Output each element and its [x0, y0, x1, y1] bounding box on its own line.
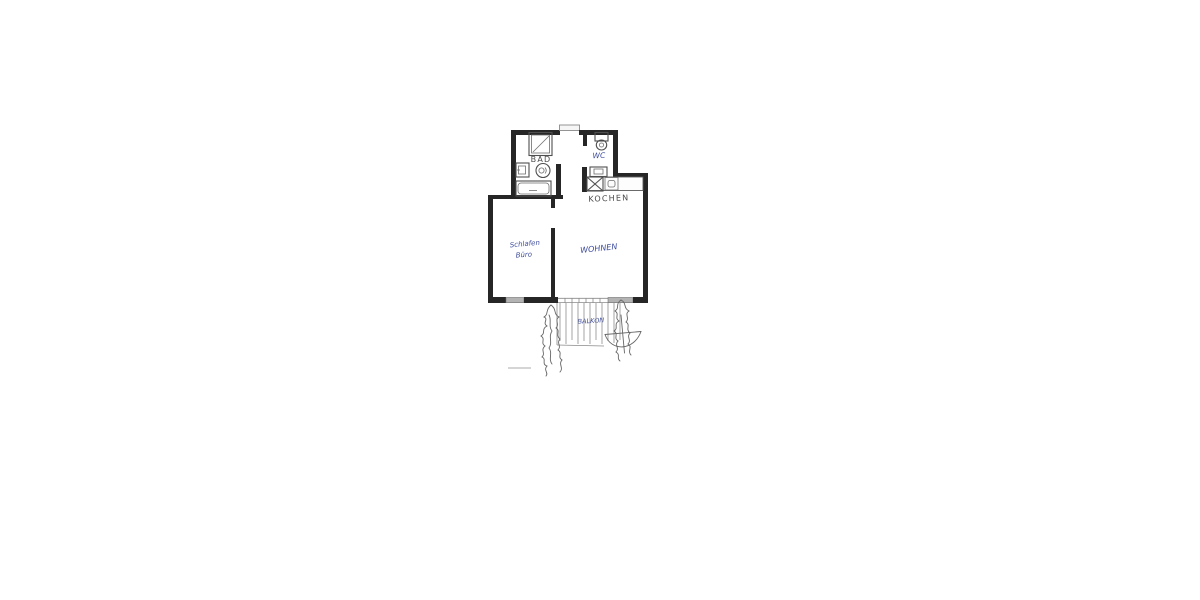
- wall-bottom-right: [633, 297, 648, 303]
- wc-label: WC: [592, 151, 606, 160]
- wohnen-label: WOHNEN: [580, 242, 618, 255]
- scanned-floor-plan-page: BAD WC KOCHEN Schlafen Büro WOHNEN: [0, 0, 1200, 600]
- wall-divider-stub: [551, 199, 555, 208]
- wall-bottom-mid: [524, 297, 558, 303]
- wall-wc-block: [582, 167, 587, 192]
- wall-right: [643, 173, 648, 303]
- wc-washbasin-icon: [590, 167, 607, 177]
- wc-toilet-icon: [595, 133, 608, 151]
- bathroom-washbasin-icon: [516, 163, 529, 177]
- wc-fixtures: WC: [590, 133, 608, 177]
- floor-plan-drawing: BAD WC KOCHEN Schlafen Büro WOHNEN: [0, 0, 1200, 600]
- wall-bottom-left: [488, 297, 506, 303]
- bathroom-toilet-icon: [536, 164, 550, 178]
- wall-bad-right: [556, 164, 561, 199]
- wall-left: [488, 195, 493, 303]
- shower-icon: [529, 133, 552, 156]
- bathroom-fixtures: BAD: [516, 133, 552, 197]
- buero-label: Büro: [515, 250, 532, 259]
- wall-bad-left: [511, 130, 516, 199]
- schlafen-label: Schlafen: [509, 239, 540, 250]
- wall-divider-lower: [551, 228, 555, 300]
- balkon-label: BALKON: [577, 316, 604, 325]
- balcony: [541, 300, 641, 376]
- wall-wc-right: [613, 130, 618, 178]
- room-labels: Schlafen Büro WOHNEN BALKON: [509, 239, 617, 326]
- window-bedroom: [506, 298, 524, 303]
- bad-label: BAD: [531, 155, 552, 164]
- plant-left-icon: [541, 305, 562, 376]
- wall-wc-left-stub: [583, 130, 587, 146]
- bathtub-icon: [516, 181, 551, 196]
- walls: [488, 125, 648, 303]
- kitchen: KOCHEN: [587, 177, 643, 204]
- entry-door-icon: [560, 125, 580, 131]
- round-table-icon: [605, 315, 641, 353]
- kochen-label: KOCHEN: [588, 193, 629, 203]
- balcony-door-band: [558, 298, 608, 302]
